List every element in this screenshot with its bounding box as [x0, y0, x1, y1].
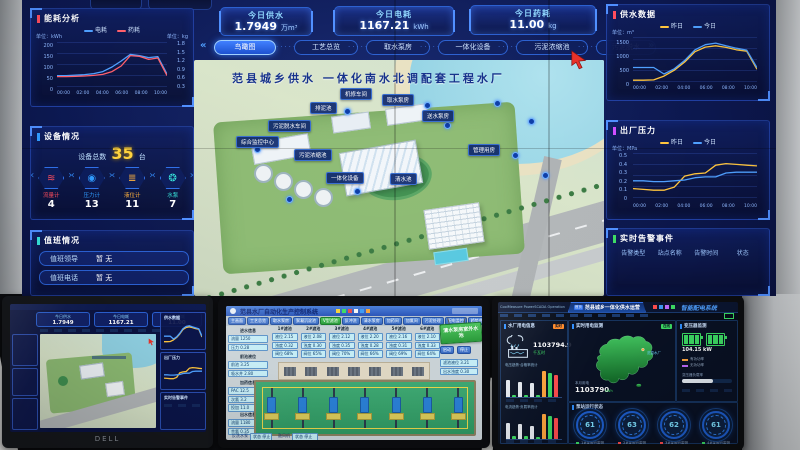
scada-group-blower: 鼓风机 状态 停止: [278, 432, 318, 440]
map-label-monitor-center[interactable]: 综合监控中心: [236, 136, 279, 148]
mouse-cursor: [570, 50, 588, 70]
stat-value: 1.7949 万m³: [235, 21, 298, 34]
wall-seam-horizontal: [22, 148, 776, 149]
green-signboard: 清水泵房室外水池: [439, 322, 482, 345]
map-label-sludge-thickener[interactable]: 污泥浓缩池: [294, 149, 332, 161]
rs-menubar[interactable]: [500, 314, 650, 317]
x-axis-ticks: 00:0002:0004:00 06:0008:0010:00: [633, 204, 757, 209]
panel-title: 实时告警事件: [607, 229, 769, 244]
map-node-dot[interactable]: [354, 188, 361, 195]
duty-phone-row: 值班电话暂 无: [39, 270, 189, 285]
scada-filter-groups: 1#滤池 液位 2.15 浊度 0.32 阀位 68% 2#滤池 液位 2.08…: [272, 326, 440, 358]
room-wall-right-lower: [742, 294, 800, 450]
rs-chart1-title: 电压趋势·合格率统计: [505, 363, 538, 368]
video-wall-dashboard: 今日供水 1.7949 万m³ 今日电耗 1167.21 kWh 今日药耗 11…: [22, 0, 776, 296]
pump-icon: ❂: [160, 167, 186, 189]
map-title: 范县城乡供水 一体化南水北调配套工程水厂: [232, 70, 505, 86]
map-node-dot[interactable]: [528, 118, 535, 125]
stat-daily-chemical: 今日药耗 11.00 kg: [470, 5, 596, 35]
rs-battery-indicator: [724, 313, 734, 319]
mini-alarm-panel: 实时告警事件: [160, 392, 206, 430]
rs-detail-rows: [682, 389, 732, 392]
pump-gauge-2: 63 2#泵运行监测: [618, 411, 646, 444]
rs-panel-title: 泵站运行状态: [569, 403, 737, 411]
map-label-sludge-dewater[interactable]: 污泥脱水车间: [268, 120, 311, 132]
rs-bar-chart-2: [506, 411, 562, 440]
scada-toolbar-icons[interactable]: [336, 309, 370, 313]
energy-line-chart: [57, 42, 167, 88]
scada-tab[interactable]: 取水泵房: [270, 317, 292, 325]
equipment-pressure-meter: ◉ 压力计 13: [73, 167, 111, 210]
scada-title: 范县水厂自动化生产控制系统: [240, 307, 318, 316]
y-ticks: 0.5 0.4 0.3 0.2 0.1 0: [611, 152, 627, 203]
rs-panel-title: 水厂用电信息 实时: [501, 321, 567, 331]
legend-item: 今日: [693, 21, 716, 30]
start-button[interactable]: 启动: [440, 346, 454, 354]
filter-group-2: 2#滤池 液位 2.08 浊度 0.30 阀位 65%: [301, 326, 327, 358]
y-ticks-left: 200 150 100 50 0: [33, 41, 53, 96]
monitor-middle: 范县水厂自动化生产控制系统 主画面 工艺总览 取水泵房 絮凝沉淀池 V型滤池 反…: [218, 298, 490, 448]
rs-map-panel: 实时用电监测 在线 范县水厂 本月用电 1103790 kWh: [568, 320, 676, 402]
rs-power-value: 104.15 kW: [682, 347, 712, 353]
rs-panel-title: 实时用电监测 在线: [569, 321, 675, 331]
filter-group-1: 1#滤池 液位 2.15 浊度 0.32 阀位 68%: [272, 326, 298, 358]
map-node-dot[interactable]: [424, 102, 431, 109]
y-ticks-right: 1.8 1.5 1.2 0.9 0.6 0.3: [177, 40, 191, 91]
rs-header: CoolMeasure PowerSCADA Operation 首页 范县城乡…: [498, 302, 738, 313]
flow-meter-icon: ≋: [38, 167, 64, 189]
map-node-dot[interactable]: [512, 152, 519, 159]
legend-item: 昨日: [660, 21, 683, 30]
filter-group-3: 3#滤池 液位 2.12 浊度 0.35 阀位 70%: [329, 326, 355, 358]
panel-title: 出厂压力: [607, 121, 769, 136]
mini-cursor: [148, 338, 155, 346]
map-node-dot[interactable]: [542, 172, 549, 179]
scada-titlebar: 范县水厂自动化生产控制系统: [226, 306, 482, 316]
rs-energy-value: 1103794.9: [533, 341, 572, 349]
map-tank-1: [254, 164, 273, 183]
pump-unit-3[interactable]: [326, 388, 341, 428]
filter-group-4: 4#滤池 液位 2.20 浊度 0.28 阀位 66%: [358, 326, 384, 358]
mini-field: [58, 376, 68, 386]
pressure-meter-icon: ◉: [79, 167, 105, 189]
panel-title: 能耗分析: [31, 9, 193, 24]
map-label-clear-water-pool[interactable]: 清水池: [390, 173, 417, 185]
y-axis-unit: 单位：m³: [612, 29, 634, 36]
rs-panel-title: 变压器监测: [677, 321, 737, 331]
y-axis-unit-left: 单位：kWh: [36, 33, 62, 40]
plant-aerial-map: 范县城乡供水 一体化南水北调配套工程水厂 排泥池 机修车间 取水泵房 送水泵房 …: [194, 60, 604, 296]
legend-item: 今日: [693, 137, 716, 146]
scada-tab[interactable]: 絮凝沉淀池: [293, 317, 319, 325]
scada-group-level: 前池液位 前池 3.25 吸水井 2.80: [228, 354, 268, 377]
map-node-dot[interactable]: [494, 100, 501, 107]
home-chip: 首页: [574, 305, 583, 310]
rs-map-marker-label: 范县水厂: [647, 351, 661, 356]
monitor-middle-screen: 范县水厂自动化生产控制系统 主画面 工艺总览 取水泵房 絮凝沉淀池 V型滤池 反…: [226, 306, 482, 440]
pump-unit-6[interactable]: [420, 388, 435, 428]
mini-supply-chart: [164, 322, 202, 344]
equipment-flow-meter: ≋ 流量计 4: [32, 167, 70, 210]
pump-gauge-3: 62 3#泵运行监测: [660, 411, 688, 444]
map-label-admin-building[interactable]: 管理用房: [468, 144, 500, 156]
scada-tab[interactable]: 加氯间: [403, 317, 421, 325]
room-wall-right: [776, 0, 800, 296]
rs-brand: CoolMeasure PowerSCADA Operation: [500, 305, 565, 309]
panel-equipment-status: 设备情况 设备总数 35 台 ≋ 流量计 4 ◉ 压力计 13 ≣: [30, 126, 194, 220]
pump-columns: [256, 382, 474, 434]
duty-leader-row: 值班领导暂 无: [39, 251, 189, 266]
battery-icon: [682, 333, 701, 346]
rs-transformer-panel: 变压器监测 104.15 kW 有功功率 无功功率 变压器负载率: [676, 320, 738, 402]
rs-legend-active: 有功功率: [682, 357, 704, 362]
rs-nav-pill[interactable]: 首页 范县城乡一体化供水运营: [568, 302, 646, 313]
rs-system-title: 智能配电系统: [681, 303, 717, 312]
panel-duty-status: 值班情况 值班领导暂 无 值班电话暂 无: [30, 230, 194, 296]
mini-pressure-panel: 出厂压力: [160, 352, 206, 390]
battery-icons: [682, 333, 725, 346]
rs-month-value: 1103790: [575, 386, 609, 394]
scada-tab[interactable]: 主画面: [228, 317, 246, 325]
mini-building: [105, 381, 125, 397]
scada-logo: [230, 308, 236, 314]
mini-tab-row[interactable]: [40, 329, 170, 332]
rs-gauge-panel: 泵站运行状态 61 1#泵运行监测 63 2#泵运行监测 62 3#泵运行监测: [568, 402, 738, 444]
filter-group-6: 6#滤池 液位 2.10 浊度 0.33 阀位 64%: [415, 326, 441, 358]
legend-item: 电耗: [84, 25, 107, 34]
control-room-photo: 今日供水 1.7949 万m³ 今日电耗 1167.21 kWh 今日药耗 11…: [0, 0, 800, 450]
pump-unit-1[interactable]: [264, 388, 279, 428]
legend-item: 昨日: [660, 137, 683, 146]
rs-legend-reactive: 无功功率: [682, 363, 704, 368]
supply-line-chart: [633, 37, 757, 83]
monitor-left: 今日供水1.7949 今日电耗1167.21 今日药耗11.00: [2, 296, 213, 448]
rs-energy-panel: 水厂用电信息 实时 1103794.9 千瓦时 电压趋势·合格率统计: [500, 320, 568, 444]
battery-icon: [706, 333, 725, 346]
filter-gallery-roof: [278, 362, 430, 380]
pressure-line-chart: [633, 153, 757, 200]
dell-logo: DELL: [2, 435, 213, 443]
mini-map-title: [92, 356, 126, 359]
rs-bar-chart-1: [506, 369, 562, 398]
panel-title: 值班情况: [31, 231, 193, 246]
map-tank-4: [314, 188, 333, 207]
map-tank-3: [294, 180, 313, 199]
rs-bar-labels: [506, 399, 562, 402]
pump-unit-5[interactable]: [389, 388, 404, 428]
rs-energy-unit: 千瓦时: [533, 350, 545, 356]
legend-item: 药耗: [117, 25, 140, 34]
stat-daily-supply: 今日供水 1.7949 万m³: [220, 7, 312, 36]
mini-stat-power: 今日电耗1167.21: [94, 312, 148, 327]
map-node-dot[interactable]: [344, 108, 351, 115]
x-axis-ticks: 00:0002:0004:00 06:0008:0010:00: [633, 86, 757, 91]
scada-right-values: 滤池液位 3.21 出水浊度 0.30: [440, 358, 478, 375]
alarm-table-header: 告警类型站点名称 告警时间状态: [607, 244, 769, 257]
pump-gauge-4: 61 4#泵运行监测: [702, 411, 730, 444]
tab-aerial-view[interactable]: 鸟瞰图: [214, 40, 276, 55]
scada-command-buttons: 启动 停止: [440, 346, 471, 354]
map-label-intake-pump[interactable]: 取水泵房: [382, 94, 414, 106]
map-building-office: [423, 202, 484, 249]
monitor-right-screen: CoolMeasure PowerSCADA Operation 首页 范县城乡…: [498, 302, 738, 444]
factory-rain-icon: [505, 335, 531, 359]
scada-datetime-area: [452, 308, 478, 314]
y-ticks: 1500 1000 500 0: [609, 36, 629, 92]
level-meter-icon: ≣: [119, 167, 145, 189]
map-label-repair-shop[interactable]: 机修车间: [340, 88, 372, 100]
scada-group-backwash: 反洗水泵 状态 停止: [232, 432, 272, 440]
map-tank-2: [274, 172, 293, 191]
equipment-items: ≋ 流量计 4 ◉ 压力计 13 ≣ 液位计 11 ❂ 水泵 7: [31, 167, 193, 210]
mini-topbar: [10, 304, 206, 310]
equipment-pump: ❂ 水泵 7: [154, 167, 192, 210]
pump-unit-7[interactable]: [451, 388, 466, 428]
filter-pool: [254, 380, 476, 436]
tabs-prev-arrow[interactable]: «: [200, 40, 206, 51]
mini-left-panel-2: [12, 368, 38, 396]
rs-load-track: [682, 379, 732, 383]
panel-energy-analysis: 能耗分析 电耗 药耗 单位：kWh 单位：kg 200 150 100 50 0…: [30, 8, 194, 107]
panel-outlet-pressure: 出厂压力 昨日 今日 单位：MPa 0.5 0.4 0.3 0.2 0.1 0 …: [606, 120, 770, 220]
panel-realtime-alarms: 实时告警事件 告警类型站点名称 告警时间状态: [606, 228, 770, 296]
mini-pressure-chart: [164, 362, 202, 384]
map-node-dot[interactable]: [444, 122, 451, 129]
map-node-dot[interactable]: [286, 196, 293, 203]
rs-status-icons[interactable]: [653, 305, 675, 309]
stop-button[interactable]: 停止: [457, 346, 471, 354]
gauges-row: 61 1#泵运行监测 63 2#泵运行监测 62 3#泵运行监测 61 4#泵运…: [569, 411, 737, 444]
rs-bar-labels: [506, 440, 562, 443]
mini-alarm-row: [164, 404, 202, 407]
equipment-total: 设备总数 35 台: [31, 144, 193, 163]
filter-group-5: 5#滤池 液位 2.16 浊度 0.31 阀位 69%: [386, 326, 412, 358]
scada-tab[interactable]: 反冲洗: [342, 317, 360, 325]
map-label-integrated-equipment[interactable]: 一体化设备: [326, 172, 364, 184]
mini-left-panel-1: [12, 334, 38, 366]
mini-aerial-map: [40, 334, 156, 428]
china-map: [579, 331, 671, 393]
panel-title: 供水数据: [607, 5, 769, 20]
mini-supply-panel: 供水数据: [160, 312, 206, 350]
map-label-delivery-pump[interactable]: 送水泵房: [422, 110, 454, 122]
map-label-paini-pool[interactable]: 排泥池: [310, 102, 337, 114]
scada-tab[interactable]: 加药间: [384, 317, 402, 325]
rs-load-fill: [682, 379, 713, 383]
pump-gauge-1: 61 1#泵运行监测: [576, 411, 604, 444]
mini-left-panel-3: [12, 398, 38, 430]
pump-unit-4[interactable]: [357, 388, 372, 428]
panel-supply-data: 供水数据 昨日 今日 单位：m³ 1500 1000 500 0 00:0002…: [606, 4, 770, 101]
scada-tab[interactable]: 工艺总览: [247, 317, 269, 325]
rs-month-unit: kWh: [605, 389, 613, 393]
scada-tab[interactable]: 清水泵房: [361, 317, 383, 325]
pump-unit-2[interactable]: [295, 388, 310, 428]
room-wall-left: [0, 0, 22, 296]
panel-title: 设备情况: [31, 127, 193, 142]
y-axis-unit-right: 单位：kg: [167, 33, 188, 40]
x-axis-ticks: 00:0002:0004:00 06:0008:0010:00: [57, 91, 167, 96]
rs-chart2-title: 电流趋势·负载率统计: [505, 405, 538, 410]
monitor-left-screen: 今日供水1.7949 今日电耗1167.21 今日药耗11.00: [10, 304, 206, 432]
mini-stat-supply: 今日供水1.7949: [36, 312, 90, 327]
monitor-right: CoolMeasure PowerSCADA Operation 首页 范县城乡…: [492, 296, 744, 450]
scada-group-inflow: 进水信息 流量 1250 压力 0.28: [228, 328, 268, 351]
scada-tab-active[interactable]: V型滤池: [320, 317, 341, 325]
rs-load-label: 变压器负载率: [682, 373, 703, 378]
equipment-level-meter: ≣ 液位计 11: [113, 167, 151, 210]
